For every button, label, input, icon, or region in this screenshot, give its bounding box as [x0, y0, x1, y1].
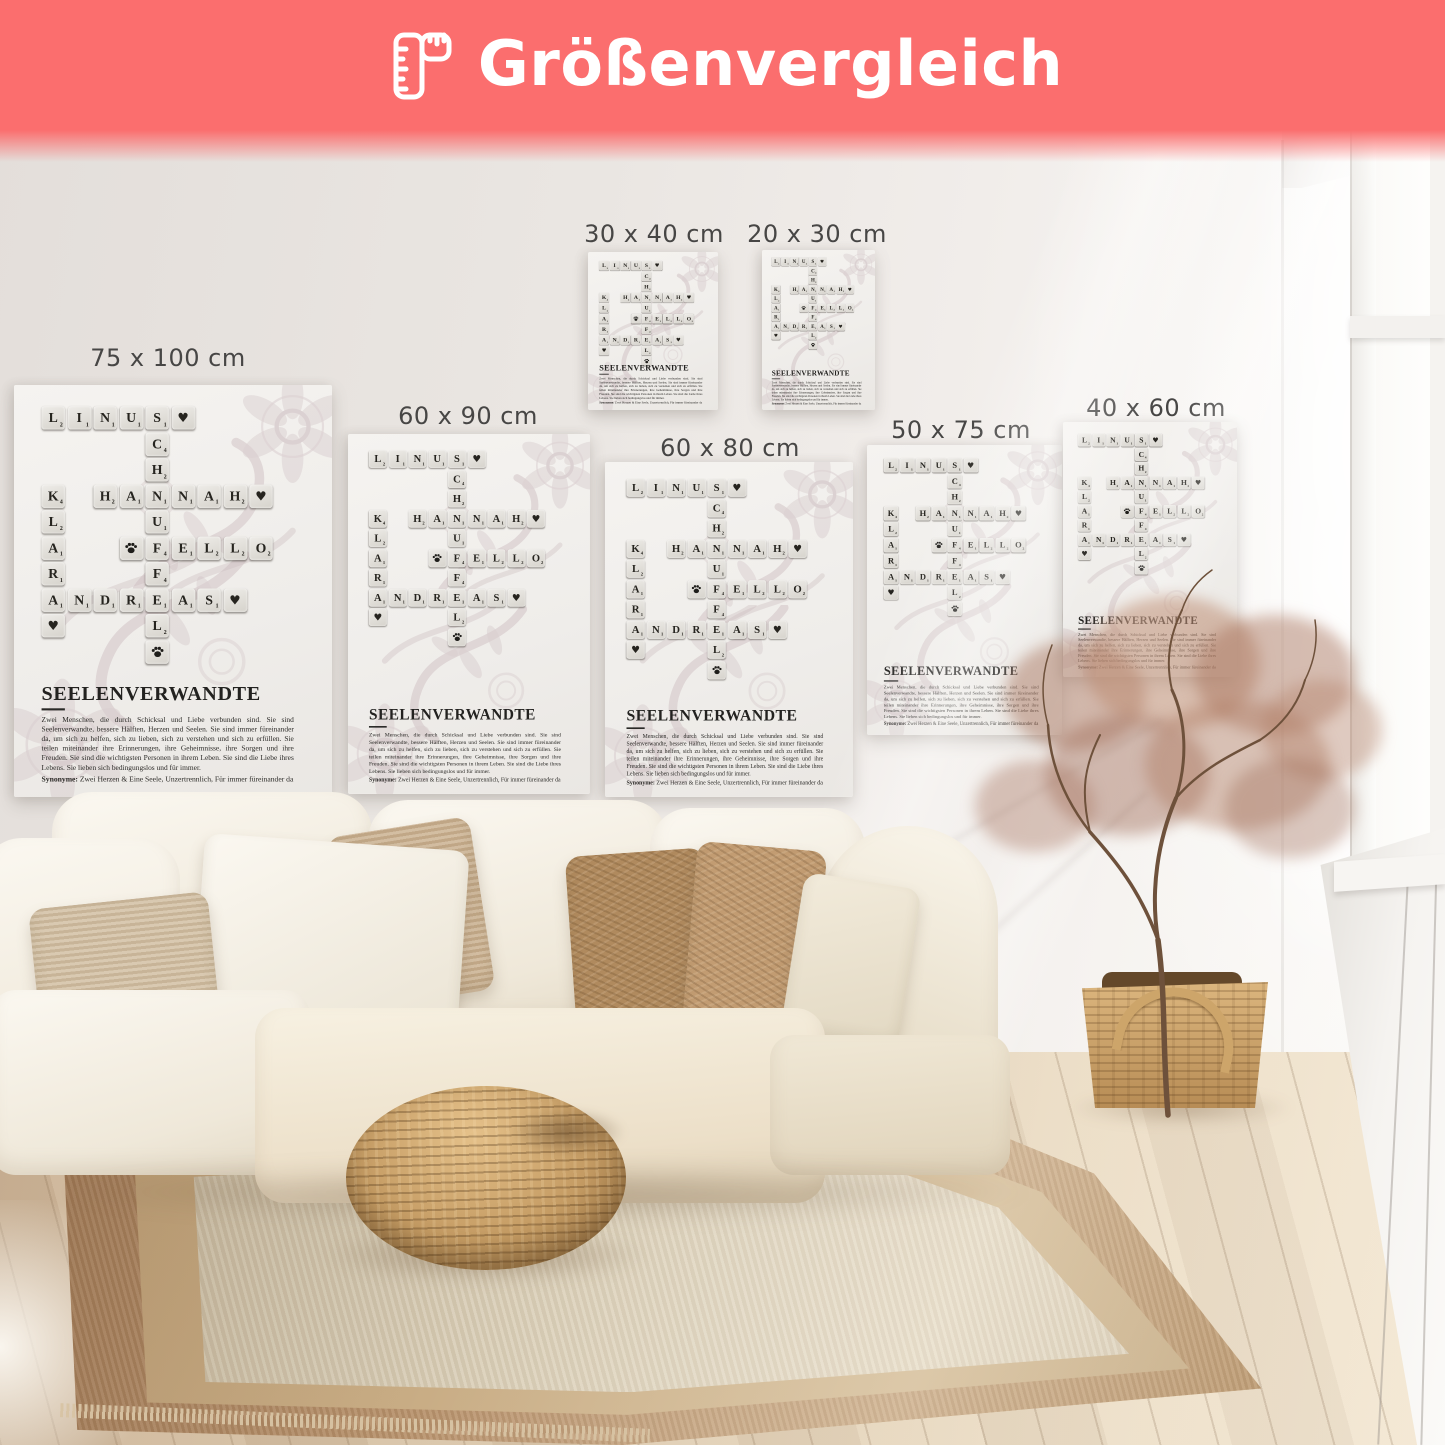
tile-value: 1 [661, 491, 663, 496]
scrabble-tile-L: L2 [42, 510, 65, 533]
tile-value: 1 [216, 501, 219, 507]
tile-value: 1 [959, 468, 961, 472]
scrabble-tile-A: A1 [369, 549, 387, 567]
scrabble-tile-E: E1 [728, 580, 746, 598]
title-underline [599, 374, 609, 375]
scrabble-tile-H: H2 [621, 293, 631, 303]
scrabble-tile-H: H2 [667, 539, 685, 557]
sofa-seat-cushion [770, 1035, 1010, 1175]
tile-value: 1 [895, 548, 897, 552]
scrabble-tile-R: R1 [687, 620, 705, 638]
tile-value: 1 [702, 552, 704, 557]
heart-icon: ♥ [527, 509, 545, 527]
poster-text-block: SEELENVERWANDTEZwei Menschen, die durch … [42, 684, 294, 785]
scrabble-tile-A: A1 [468, 588, 486, 606]
scrabble-tile-C: C4 [145, 432, 168, 455]
scrabble-tile-S: S1 [642, 261, 652, 271]
tile-value: 2 [1188, 514, 1190, 517]
tile-value: 1 [164, 423, 167, 429]
tile-value: 1 [742, 593, 744, 598]
heart-tile: ♥ [223, 588, 246, 611]
tile-value: 1 [462, 542, 464, 546]
scrabble-tile-A: A1 [772, 304, 780, 312]
scrabble-tile-U: U1 [799, 258, 807, 266]
scrabble-tile-A: A1 [652, 335, 662, 345]
size-comparison-banner: Größenvergleich [0, 0, 1445, 130]
scrabble-tile-L: L2 [772, 258, 780, 266]
tile-value: 2 [607, 267, 608, 269]
scrabble-tile-K: K4 [369, 509, 387, 527]
tile-value: 1 [702, 491, 704, 496]
tile-value: 2 [1202, 514, 1204, 517]
tile-value: 2 [462, 502, 464, 506]
paw-tile [687, 580, 705, 598]
scrabble-tile-N: N1 [1149, 476, 1162, 489]
tile-value: 1 [959, 516, 961, 520]
tile-value: 1 [895, 564, 897, 568]
paw-icon [633, 316, 639, 322]
scrabble-tile-F: F4 [448, 549, 466, 567]
tile-value: 1 [722, 552, 724, 557]
heart-icon: ♥ [684, 293, 694, 303]
tile-value: 1 [742, 633, 744, 638]
synonyms-label: Synonyme: [369, 777, 398, 783]
scrabble-tile-N: N1 [647, 620, 665, 638]
scrabble-tile-A: A1 [1121, 476, 1134, 489]
scrabble-tile-L: L2 [507, 549, 525, 567]
tile-value: 2 [778, 300, 779, 302]
tile-value: 1 [403, 463, 405, 467]
poster-artwork: L2I1N1U1S1♥C4H2K4H2A1N1N1A1H2♥L2U1A1 F4E… [348, 434, 590, 794]
tile-value: 1 [815, 291, 816, 293]
tile-value: 1 [824, 310, 825, 312]
paw-tile [448, 628, 466, 646]
scrabble-tile-H: H2 [507, 509, 525, 527]
scrabble-tile-L: L2 [223, 536, 246, 559]
scrabble-tile-R: R1 [1078, 519, 1091, 532]
scrabble-tile-A: A1 [171, 588, 194, 611]
poster-synonyms: Synonyme: Zwei Herzen & Eine Seele, Unze… [369, 777, 561, 784]
scrabble-tile-O: O2 [249, 536, 272, 559]
scrabble-tile-A: A1 [687, 539, 705, 557]
tile-value: 1 [788, 263, 789, 265]
paw-icon [1123, 507, 1131, 515]
tile-value: 2 [242, 501, 245, 507]
tile-value: 2 [216, 552, 219, 558]
tile-value: 4 [815, 310, 816, 312]
tile-value: 2 [681, 299, 682, 301]
scrabble-tile-A: A1 [884, 538, 898, 552]
paw-tile [708, 661, 726, 679]
window-frame-inner [1430, 126, 1445, 892]
scrabble-tile-A: A1 [369, 588, 387, 606]
tile-value: 1 [462, 463, 464, 467]
heart-tile: ♥ [768, 620, 786, 638]
tile-value: 2 [462, 621, 464, 625]
tile-value: 1 [815, 328, 816, 330]
poster-text-block: SEELENVERWANDTEZwei Menschen, die durch … [626, 708, 823, 787]
scrabble-tile-L: L2 [1178, 505, 1191, 518]
heart-tile: ♥ [846, 285, 854, 293]
tile-value: 1 [991, 516, 993, 520]
tile-value: 2 [1088, 499, 1090, 502]
scrabble-tile-A: A1 [197, 484, 220, 507]
scrabble-tile-H: H2 [790, 285, 798, 293]
tile-value: 1 [959, 532, 961, 536]
tile-value: 1 [112, 423, 115, 429]
scrabble-tile-L: L2 [884, 522, 898, 536]
tile-value: 2 [641, 491, 643, 496]
scrabble-tile-H: H2 [836, 285, 844, 293]
scrabble-tile-U: U1 [932, 458, 946, 472]
heart-icon: ♥ [768, 620, 786, 638]
scrabble-tile-E: E1 [809, 322, 817, 330]
scrabble-tile-N: N1 [93, 406, 116, 429]
scrabble-tile-R: R1 [428, 588, 446, 606]
tile-value: 2 [383, 463, 385, 467]
tile-value: 1 [762, 552, 764, 557]
poster-size-label: 60 x 90 cm [398, 402, 538, 430]
tile-value: 1 [607, 342, 608, 344]
scrabble-tile-C: C4 [448, 470, 466, 488]
paw-tile [145, 640, 168, 663]
scrabble-tile-I: I1 [900, 458, 914, 472]
scrabble-tile-S: S1 [448, 450, 466, 468]
scrabble-tile-A: A1 [932, 506, 946, 520]
paw-icon [432, 553, 442, 563]
tile-value: 2 [895, 468, 897, 472]
tile-value: 1 [164, 527, 167, 533]
tile-value: 2 [797, 291, 798, 293]
tile-value: 2 [383, 542, 385, 546]
scrabble-tile-S: S1 [488, 588, 506, 606]
tile-value: 1 [164, 501, 167, 507]
scrabble-tile-A: A1 [884, 569, 898, 583]
heart-tile: ♥ [468, 450, 486, 468]
scrabble-tile-D: D1 [916, 569, 930, 583]
tile-value: 1 [911, 580, 913, 584]
tile-value: 1 [788, 328, 789, 330]
tile-value: 1 [383, 581, 385, 585]
tile-value: 1 [190, 604, 193, 610]
tile-value: 2 [1145, 471, 1147, 474]
tile-value: 1 [778, 319, 779, 321]
tile-value: 1 [1102, 443, 1104, 446]
heart-icon: ♥ [626, 641, 644, 659]
scrabble-tile-F: F4 [145, 536, 168, 559]
scrabble-tile-U: U1 [642, 303, 652, 313]
tile-value: 1 [1131, 485, 1133, 488]
poster-text-block: SEELENVERWANDTEZwei Menschen, die durch … [369, 707, 561, 784]
tile-value: 1 [1131, 443, 1133, 446]
tile-value: 2 [521, 522, 523, 526]
poster-title: SEELENVERWANDTE [772, 370, 862, 378]
scrabble-tile-A: A1 [1078, 505, 1091, 518]
poster-size-label: 75 x 100 cm [90, 344, 246, 372]
heart-tile: ♥ [369, 608, 387, 626]
tile-value: 2 [641, 572, 643, 577]
scrabble-tile-R: R1 [884, 554, 898, 568]
heart-tile: ♥ [818, 258, 826, 266]
tile-value: 2 [927, 516, 929, 520]
scrabble-tile-N: N1 [964, 506, 978, 520]
scrabble-tile-L: L2 [708, 641, 726, 659]
scrabble-tile-L: L2 [145, 614, 168, 637]
tile-value: 2 [60, 423, 63, 429]
scrabble-tile-R: R1 [119, 588, 142, 611]
tile-value: 1 [943, 516, 945, 520]
scrabble-tile-H: H2 [642, 282, 652, 292]
tile-value: 1 [138, 604, 141, 610]
scrabble-tile-N: N1 [621, 261, 631, 271]
scrabble-tile-F: F4 [642, 314, 652, 324]
tile-value: 4 [722, 593, 724, 598]
tile-value: 2 [164, 475, 167, 481]
tile-value: 2 [681, 320, 682, 322]
poster-text-block: SEELENVERWANDTEZwei Menschen, die durch … [772, 370, 862, 406]
tile-value: 1 [86, 423, 89, 429]
tile-value: 1 [797, 263, 798, 265]
poster-description: Zwei Menschen, die durch Schicksal und L… [772, 381, 862, 401]
scrabble-tile-C: C4 [809, 267, 817, 275]
tile-value: 1 [462, 601, 464, 605]
rattan-pouf [346, 1086, 626, 1270]
scrabble-tile-H: H2 [409, 509, 427, 527]
heart-icon: ♥ [836, 322, 844, 330]
poster-1: L2I1N1U1S1♥C4H2K4H2A1N1N1A1H2♥L2U1A1 F4E… [14, 385, 332, 797]
scrabble-tile-U: U1 [708, 560, 726, 578]
scrabble-tile-S: S1 [809, 258, 817, 266]
tile-value: 4 [607, 299, 608, 301]
poster-text-block: SEELENVERWANDTEZwei Menschen, die durch … [599, 364, 702, 405]
tile-value: 4 [462, 561, 464, 565]
scrabble-tile-E: E1 [1149, 505, 1162, 518]
tile-value: 1 [138, 501, 141, 507]
tile-value: 1 [660, 320, 661, 322]
scrabble-tile-A: A1 [119, 484, 142, 507]
heart-icon: ♥ [674, 335, 684, 345]
scrabble-tile-H: H2 [448, 490, 466, 508]
scrabble-tile-L: L2 [642, 346, 652, 356]
poster-3: L2I1N1U1S1♥C4H2K4H2A1N1N1A1H2♥L2U1A1 F4E… [588, 252, 718, 410]
poster-size-label: 40 x 60 cm [1086, 394, 1226, 422]
poster-title: SEELENVERWANDTE [369, 707, 561, 723]
scrabble-tile-A: A1 [42, 536, 65, 559]
scrabble-tile-D: D1 [667, 620, 685, 638]
synonyms-label: Synonyme: [42, 775, 80, 783]
heart-tile: ♥ [789, 539, 807, 557]
scrabble-tile-E: E1 [652, 314, 662, 324]
scrabble-tile-L: L2 [369, 529, 387, 547]
scrabble-tile-L: L2 [809, 331, 817, 339]
scrabble-tile-U: U1 [809, 294, 817, 302]
tile-value: 1 [649, 299, 650, 301]
scrabble-tile-I: I1 [1092, 434, 1105, 447]
tile-value: 1 [190, 501, 193, 507]
tile-value: 2 [422, 522, 424, 526]
poster-description: Zwei Menschen, die durch Schicksal und L… [626, 733, 823, 777]
scrabble-tile-F: F4 [809, 304, 817, 312]
tile-value: 4 [1145, 528, 1147, 531]
scrabble-tile-F: F4 [708, 580, 726, 598]
scrabble-tile-N: N1 [948, 506, 962, 520]
tile-value: 4 [1145, 514, 1147, 517]
scrabble-tile-C: C4 [708, 499, 726, 517]
tile-value: 2 [783, 593, 785, 598]
scrabble-tile-L: L2 [626, 479, 644, 497]
scrabble-tile-R: R1 [799, 322, 807, 330]
tile-value: 1 [442, 601, 444, 605]
window-mullion [1350, 316, 1445, 338]
tile-value: 1 [824, 291, 825, 293]
scrabble-tile-H: H2 [948, 490, 962, 504]
scrabble-tile-K: K4 [42, 484, 65, 507]
scrabble-tile-N: N1 [145, 484, 168, 507]
heart-icon: ♥ [884, 585, 898, 599]
scrabble-tile-A: A1 [488, 509, 506, 527]
scrabble-tile-N: N1 [468, 509, 486, 527]
scrabble-tile-L: L2 [836, 304, 844, 312]
tile-value: 1 [607, 320, 608, 322]
tile-value: 2 [501, 561, 503, 565]
tile-value: 1 [927, 468, 929, 472]
tile-value: 1 [722, 633, 724, 638]
scrabble-tile-R: R1 [42, 562, 65, 585]
poster-synonyms: Synonyme: Zwei Herzen & Eine Seele, Unze… [626, 779, 823, 786]
tile-value: 4 [815, 273, 816, 275]
poster-artwork: L2I1N1U1S1♥C4H2K4H2A1N1N1A1H2♥L2U1A1 F4E… [762, 250, 875, 410]
heart-icon: ♥ [171, 406, 194, 429]
tile-value: 1 [681, 491, 683, 496]
scrabble-tile-H: H2 [223, 484, 246, 507]
tile-value: 1 [834, 328, 835, 330]
poster-artwork: L2I1N1U1S1♥C4H2K4H2A1N1N1A1H2♥L2U1A1 F4E… [14, 385, 332, 797]
scrabble-tile-A: A1 [799, 285, 807, 293]
tile-value: 2 [762, 593, 764, 598]
heart-icon: ♥ [772, 331, 780, 339]
paw-icon [691, 584, 702, 595]
heart-icon: ♥ [369, 608, 387, 626]
scrabble-tile-H: H2 [93, 484, 116, 507]
tile-value: 2 [628, 299, 629, 301]
tile-value: 1 [482, 601, 484, 605]
tile-value: 2 [959, 500, 961, 504]
scrabble-tile-S: S1 [663, 335, 673, 345]
scrabble-tile-A: A1 [772, 322, 780, 330]
tile-value: 2 [541, 561, 543, 565]
scrabble-tile-L: L2 [827, 304, 835, 312]
tile-value: 1 [1145, 443, 1147, 446]
tile-value: 1 [806, 291, 807, 293]
tile-value: 1 [1088, 528, 1090, 531]
heart-tile: ♥ [1149, 434, 1162, 447]
tile-value: 2 [1188, 485, 1190, 488]
tile-value: 2 [670, 320, 671, 322]
synonyms-label: Synonyme: [626, 779, 656, 786]
tile-value: 2 [803, 593, 805, 598]
poster-4: L2I1N1U1S1♥C4H2K4H2A1N1N1A1H2♥L2U1A1 F4E… [762, 250, 875, 410]
tile-value: 1 [1145, 499, 1147, 502]
heart-tile: ♥ [626, 641, 644, 659]
tile-value: 1 [1088, 514, 1090, 517]
scrabble-tile-F: F4 [1135, 519, 1148, 532]
tile-value: 1 [216, 604, 219, 610]
tile-value: 1 [681, 633, 683, 638]
scrabble-tile-I: I1 [610, 261, 620, 271]
scrabble-tile-N: N1 [818, 285, 826, 293]
tile-value: 1 [138, 423, 141, 429]
tile-value: 1 [1173, 485, 1175, 488]
heart-tile: ♥ [1011, 506, 1025, 520]
heart-icon: ♥ [1149, 434, 1162, 447]
scrabble-tile-L: L2 [369, 450, 387, 468]
tile-value: 1 [60, 604, 63, 610]
scrabble-tile-C: C4 [948, 474, 962, 488]
scrabble-tile-A: A1 [1163, 476, 1176, 489]
tile-value: 1 [649, 310, 650, 312]
tile-value: 1 [617, 342, 618, 344]
scrabble-tile-N: N1 [171, 484, 194, 507]
scrabble-tile-H: H2 [1107, 476, 1120, 489]
tile-value: 1 [617, 267, 618, 269]
tile-value: 1 [824, 328, 825, 330]
paw-tile [631, 314, 641, 324]
scrabble-tile-D: D1 [409, 588, 427, 606]
scrabble-tile-O: O2 [1192, 505, 1205, 518]
scrabble-tile-K: K4 [772, 285, 780, 293]
banner-title: Größenvergleich [478, 27, 1063, 104]
tile-value: 2 [815, 282, 816, 284]
tile-value: 1 [834, 291, 835, 293]
heart-tile: ♥ [1192, 476, 1205, 489]
scrabble-tile-N: N1 [1107, 434, 1120, 447]
scrabble-tile-H: H2 [809, 276, 817, 284]
heart-icon: ♥ [818, 258, 826, 266]
tile-value: 1 [60, 578, 63, 584]
scrabble-tile-H: H2 [1135, 462, 1148, 475]
tile-value: 4 [164, 552, 167, 558]
tile-value: 2 [60, 527, 63, 533]
tile-value: 2 [722, 653, 724, 658]
tile-value: 2 [521, 561, 523, 565]
tile-value: 1 [628, 267, 629, 269]
heart-tile: ♥ [171, 406, 194, 429]
scrabble-tile-A: A1 [979, 506, 993, 520]
poster-size-label: 60 x 80 cm [660, 434, 800, 462]
tile-value: 1 [501, 522, 503, 526]
poster-size-label: 30 x 40 cm [584, 220, 724, 248]
scrabble-tile-E: E1 [145, 588, 168, 611]
poster-synonyms: Synonyme: Zwei Herzen & Eine Seele, Unze… [42, 775, 294, 785]
tile-value: 2 [268, 552, 271, 558]
scrabble-tile-D: D1 [93, 588, 116, 611]
poster-title: SEELENVERWANDTE [599, 364, 702, 373]
scrabble-tile-H: H2 [674, 293, 684, 303]
tile-value: 1 [1145, 485, 1147, 488]
tile-value: 1 [742, 552, 744, 557]
scrabble-tile-F: F4 [1135, 505, 1148, 518]
tile-value: 1 [815, 300, 816, 302]
tile-value: 2 [783, 552, 785, 557]
heart-icon: ♥ [1192, 476, 1205, 489]
tile-value: 1 [641, 593, 643, 598]
scrabble-tile-U: U1 [428, 450, 446, 468]
scrabble-tile-N: N1 [916, 458, 930, 472]
heart-tile: ♥ [599, 346, 609, 356]
heart-icon: ♥ [507, 588, 525, 606]
scrabble-tile-S: S1 [1135, 434, 1148, 447]
tile-value: 1 [722, 491, 724, 496]
